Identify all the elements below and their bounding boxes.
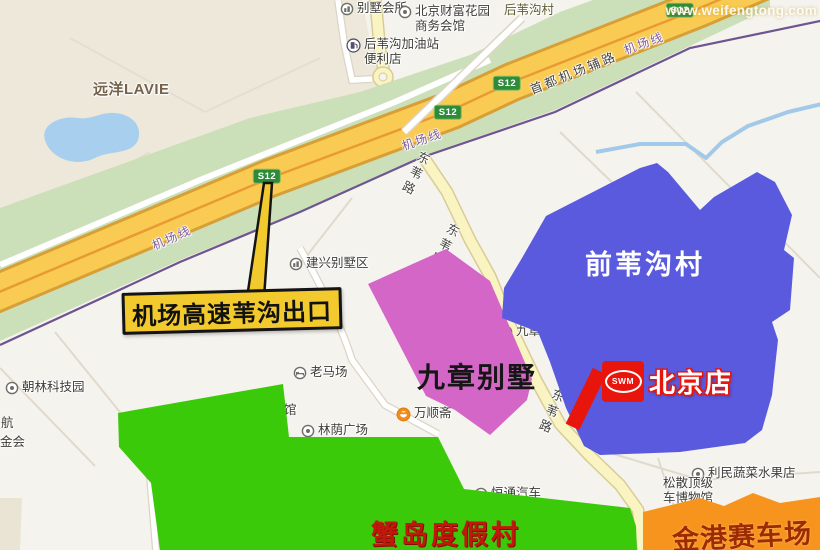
store-marker-group: SWM 北京店: [602, 361, 733, 402]
villas-region: [368, 249, 532, 435]
exit-callout: 机场高速苇沟出口: [121, 287, 342, 335]
village-region-label: 前苇沟村: [585, 243, 705, 282]
villas-region-label: 九章别墅: [417, 356, 537, 396]
village-region: [502, 163, 794, 455]
racetrack-region-label: 金港赛车场: [671, 511, 813, 550]
resort-region-label: 蟹岛度假村: [371, 513, 521, 550]
map-canvas[interactable]: 前苇沟村 九章别墅 蟹岛度假村 金港赛车场 SWM 北京店 机场高速苇沟出口 w…: [0, 0, 820, 550]
swm-logo: SWM: [602, 361, 644, 402]
watermark: www.weifengtong.com: [666, 3, 817, 18]
callout-pointer: [247, 183, 272, 298]
store-name-label: 北京店: [649, 363, 733, 400]
swm-logo-text: SWM: [605, 370, 642, 393]
